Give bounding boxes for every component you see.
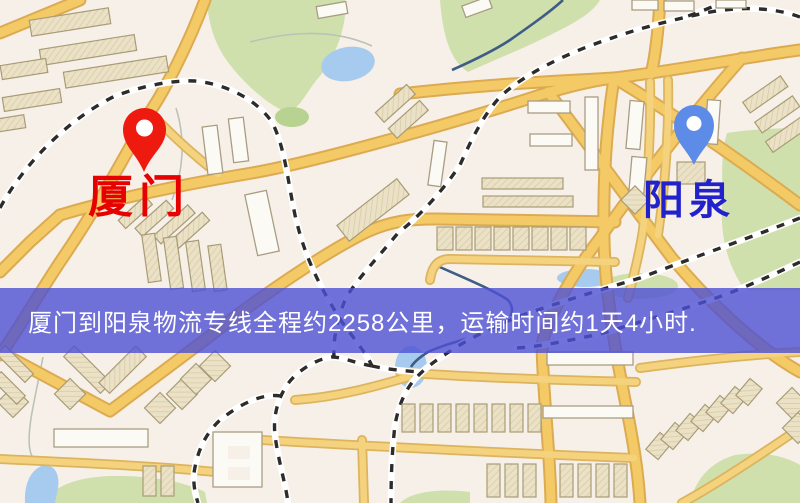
map-background (0, 0, 800, 503)
route-info-text: 厦门到阳泉物流专线全程约2258公里，运输时间约1天4小时. (28, 303, 697, 338)
destination-city-label: 阳泉 (643, 180, 735, 221)
origin-pin-icon[interactable] (123, 108, 166, 172)
destination-pin-icon[interactable] (674, 105, 714, 165)
origin-city-label: 厦门 (88, 174, 190, 219)
logistics-route-map[interactable]: 厦门 阳泉 厦门到阳泉物流专线全程约2258公里，运输时间约1天4小时. (0, 0, 800, 503)
route-info-banner: 厦门到阳泉物流专线全程约2258公里，运输时间约1天4小时. (0, 288, 800, 353)
